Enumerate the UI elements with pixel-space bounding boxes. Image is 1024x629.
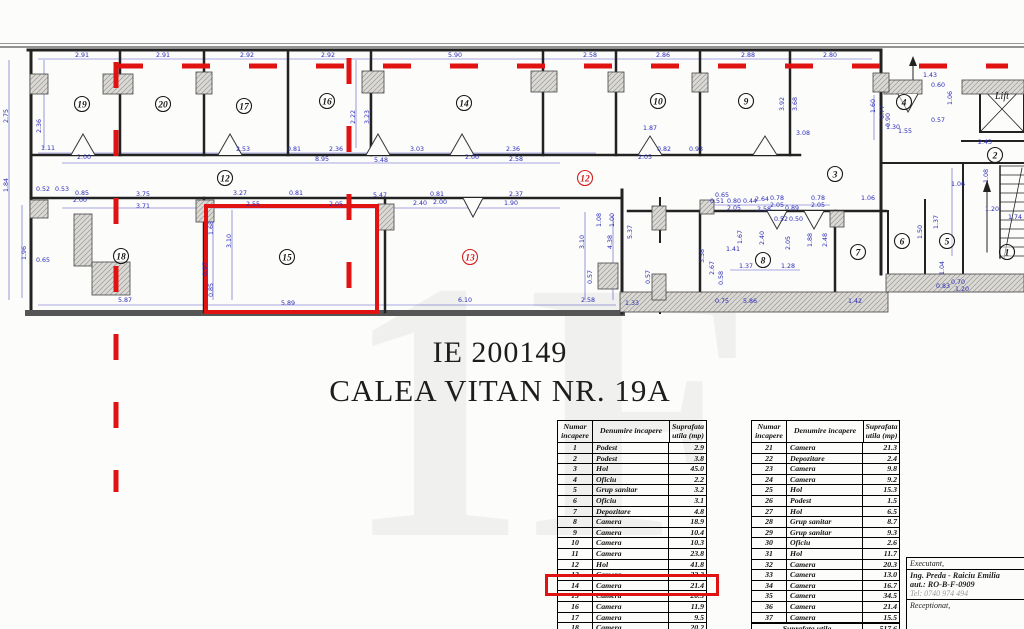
table-row: 29Grup sanitar9.3 — [752, 528, 899, 539]
dimension-label: 2.00 — [433, 199, 447, 206]
room-number: 2 — [992, 151, 998, 161]
dimension-label: 3.08 — [796, 130, 810, 137]
column-header: Denumire incapere — [593, 421, 670, 442]
room-name-cell: Camera — [593, 549, 669, 559]
room-name-cell: Hol — [593, 464, 669, 474]
room-number: 1 — [1005, 248, 1010, 258]
stairs — [1000, 166, 1024, 258]
table-row: 2Podest3.8 — [558, 454, 706, 465]
room-number-cell: 24 — [752, 475, 787, 485]
dimension-label: 2.75 — [3, 109, 10, 123]
room-area-cell: 11.9 — [669, 602, 706, 612]
dimension-label: 0.78 — [770, 195, 784, 202]
room-number-cell: 27 — [752, 507, 787, 517]
table-row: 22Depozitare2.4 — [752, 454, 899, 465]
dimension-label: 3.92 — [779, 97, 786, 111]
column-header: Denumire incapere — [787, 421, 864, 442]
dimension-label: 3.10 — [226, 234, 233, 248]
dimension-label: 0.57 — [587, 270, 594, 284]
dimension-label: 0.80 — [727, 198, 741, 205]
dimension-label: 1.37 — [739, 263, 753, 270]
room-number-cell: 3 — [558, 464, 593, 474]
room-name-cell: Camera — [787, 613, 863, 623]
table-row: 14Camera21.4 — [558, 581, 706, 592]
table-row: 15Camera20.5 — [558, 591, 706, 602]
table-row: 6Oficiu3.1 — [558, 496, 706, 507]
room-name-cell: Depozitare — [593, 507, 669, 517]
room-number-cell: 17 — [558, 613, 593, 623]
dimension-label: 2.00 — [73, 197, 87, 204]
room-name-cell: Camera — [593, 517, 669, 527]
room-area-cell: 41.8 — [669, 560, 706, 570]
dimension-label: 3.03 — [410, 146, 424, 153]
room-number-cell: 11 — [558, 549, 593, 559]
room-number-cell: 33 — [752, 570, 787, 580]
room-area-cell: 18.9 — [669, 517, 706, 527]
title-block: IE 200149 CALEA VITAN NR. 19A — [260, 336, 740, 409]
dimension-label: 2.05 — [329, 201, 343, 208]
table-header-row: Numar incapereDenumire incapereSuprafata… — [752, 421, 899, 443]
room-name-cell: Grup sanitar — [787, 517, 863, 527]
room-area-cell: 9.8 — [863, 464, 899, 474]
room-name-cell: Camera — [593, 538, 669, 548]
dimension-label: 5.87 — [118, 297, 132, 304]
dimension-label: 2.22 — [350, 110, 357, 124]
dimension-label: 2.53 — [236, 146, 250, 153]
table-row: 25Hol15.3 — [752, 485, 899, 496]
dimension-label: 3.27 — [233, 190, 247, 197]
room-area-cell: 15.3 — [863, 485, 899, 495]
dimension-label: 2.36 — [506, 146, 520, 153]
dimension-label: 0.50 — [789, 216, 803, 223]
dimension-label: 1.04 — [939, 261, 946, 275]
table-row: 7Depozitare4.8 — [558, 507, 706, 518]
room-number-cell: 13 — [558, 570, 593, 580]
dimension-label: 2.88 — [741, 52, 755, 59]
dimension-label: 1.00 — [609, 213, 616, 227]
room-name-cell: Camera — [593, 591, 669, 601]
room-name-cell: Oficiu — [593, 496, 669, 506]
room-area-cell: 3.1 — [669, 496, 706, 506]
dimension-label: 5.86 — [743, 298, 757, 305]
dimension-label: 2.64 — [755, 196, 769, 203]
dimension-label: 6.10 — [458, 297, 472, 304]
dimension-label: 1.06 — [861, 195, 875, 202]
room-number-cell: 8 — [558, 517, 593, 527]
room-number: 19 — [77, 100, 87, 110]
room-number-cell: 7 — [558, 507, 593, 517]
room-number: 3 — [832, 170, 838, 180]
room-area-cell: 4.8 — [669, 507, 706, 517]
room-area-cell: 21.4 — [863, 602, 899, 612]
dimension-label: 1.42 — [848, 298, 862, 305]
table-row: 16Camera11.9 — [558, 602, 706, 613]
dimension-label: 0.81 — [287, 146, 301, 153]
table-row: 28Grup sanitar8.7 — [752, 517, 899, 528]
room-area-cell: 11.7 — [863, 549, 899, 559]
room-number-cell: 23 — [752, 464, 787, 474]
dimension-label: 2.92 — [321, 52, 335, 59]
column-header: Suprafata utila (mp) — [864, 421, 899, 442]
dimension-label: 2.36 — [36, 119, 43, 133]
table-row: 3Hol45.0 — [558, 464, 706, 475]
room-number-cell: 5 — [558, 485, 593, 495]
table-row: 9Camera10.4 — [558, 528, 706, 539]
dimension-label: 1.84 — [3, 178, 10, 192]
room-number-cell: 30 — [752, 538, 787, 548]
dimension-label: 2.05 — [727, 205, 741, 212]
room-name-cell: Camera — [593, 623, 669, 629]
dimension-label: 0.85 — [208, 283, 215, 297]
total-value: 517.6 — [863, 624, 899, 629]
room-area-cell: 22.3 — [669, 570, 706, 580]
dimension-label: 0.97 — [202, 262, 209, 276]
room-number: 8 — [761, 256, 766, 266]
dimension-label: 0.81 — [430, 191, 444, 198]
room-name-cell: Camera — [593, 581, 669, 591]
dimension-label: 2.58 — [583, 52, 597, 59]
executant-authorization: aut.: RO-B-F-0909 — [910, 580, 1021, 589]
dimension-label: 0.65 — [36, 257, 50, 264]
room-area-cell: 9.2 — [863, 475, 899, 485]
room-area-cell: 20.3 — [863, 560, 899, 570]
dimension-label: 0.57 — [645, 270, 652, 284]
dimension-label: 2.40 — [413, 200, 427, 207]
dimension-label: 0.52 — [774, 216, 788, 223]
dimension-label: 1.06 — [951, 181, 965, 188]
table-row: 13Camera22.3 — [558, 570, 706, 581]
room-name-cell: Camera — [787, 464, 863, 474]
receptionat-label: Receptionat, — [907, 600, 1024, 611]
column-header: Numar incapere — [752, 421, 787, 442]
lift-label: Lift — [994, 91, 1009, 102]
room-area-cell: 1.5 — [863, 496, 899, 506]
table-row: 24Camera9.2 — [752, 475, 899, 486]
executant-name: Ing. Preda - Raiciu Emilia — [910, 571, 1021, 580]
drawing-sheet: 1F — [0, 0, 1024, 629]
room-number-cell: 36 — [752, 602, 787, 612]
dimension-label: 2.58 — [581, 297, 595, 304]
table-row: 33Camera13.0 — [752, 570, 899, 581]
dimension-label: 1.33 — [625, 300, 639, 307]
room-name-cell: Podest — [593, 443, 669, 453]
room-area-cell: 10.4 — [669, 528, 706, 538]
column-header: Numar incapere — [558, 421, 593, 442]
room-number-cell: 37 — [752, 613, 787, 623]
room-area-cell: 9.5 — [669, 613, 706, 623]
dimension-label: 2.40 — [759, 231, 766, 245]
room-name-cell: Oficiu — [593, 475, 669, 485]
room-name-cell: Camera — [593, 570, 669, 580]
room-area-cell: 45.0 — [669, 464, 706, 474]
dimension-label: 3.75 — [136, 191, 150, 198]
room-area-cell: 34.5 — [863, 591, 899, 601]
room-area-cell: 2.2 — [669, 475, 706, 485]
room-number-cell: 28 — [752, 517, 787, 527]
room-name-cell: Hol — [787, 485, 863, 495]
room-number: 9 — [744, 97, 749, 107]
dimension-label: 1.37 — [933, 215, 940, 229]
room-name-cell: Oficiu — [787, 538, 863, 548]
room-area-cell: 20.5 — [669, 591, 706, 601]
dimension-label: 2.37 — [509, 191, 523, 198]
dimension-label: 3.58 — [699, 249, 706, 263]
dimension-label: 0.60 — [931, 82, 945, 89]
dimension-label: 0.51 — [710, 198, 724, 205]
room-number-cell: 21 — [752, 443, 787, 453]
table-row: 4Oficiu2.2 — [558, 475, 706, 486]
dimension-label: 1.55 — [898, 128, 912, 135]
room-area-cell: 21.4 — [669, 581, 706, 591]
dimension-label: 1.90 — [504, 200, 518, 207]
room-table-left: Numar incapereDenumire incapereSuprafata… — [557, 420, 707, 629]
table-row: 1Podest2.9 — [558, 443, 706, 454]
dimension-label: 0.58 — [718, 271, 725, 285]
room-area-cell: 3.8 — [669, 454, 706, 464]
dimension-label: 2.05 — [638, 154, 652, 161]
dimension-label: 0.93 — [689, 146, 703, 153]
table-row: 18Camera20.2 — [558, 623, 706, 629]
dimension-label: 0.82 — [657, 146, 671, 153]
table-row: 32Camera20.3 — [752, 560, 899, 571]
dimension-label: 5.89 — [281, 300, 295, 307]
dimension-label: 2.55 — [246, 201, 260, 208]
dimension-label: 4.38 — [607, 235, 614, 249]
table-row: 27Hol6.5 — [752, 507, 899, 518]
table-row: 37Camera15.5 — [752, 613, 899, 624]
room-name-cell: Grup sanitar — [593, 485, 669, 495]
room-number-cell: 34 — [752, 581, 787, 591]
room-area-cell: 2.4 — [863, 454, 899, 464]
dimension-label: 2.80 — [823, 52, 837, 59]
room-name-cell: Camera — [787, 591, 863, 601]
room-number: 17 — [239, 102, 250, 112]
dimension-label: 1.11 — [41, 145, 55, 152]
room-area-cell: 20.2 — [669, 623, 706, 629]
dimension-label: 1.88 — [807, 233, 814, 247]
dimension-label: 0.52 — [36, 186, 50, 193]
table-total-row: Suprafata utila517.6 — [752, 623, 899, 629]
dimension-label: 2.58 — [757, 206, 771, 213]
room-area-cell: 6.5 — [863, 507, 899, 517]
room-number-cell: 22 — [752, 454, 787, 464]
table-row: 36Camera21.4 — [752, 602, 899, 613]
room-number: 18 — [116, 252, 126, 262]
table-row: 30Oficiu2.6 — [752, 538, 899, 549]
dimension-label: 2.05 — [785, 236, 792, 250]
dimension-label: 2.00 — [465, 154, 479, 161]
room-name-cell: Camera — [787, 570, 863, 580]
dimension-label: 0.70 — [951, 279, 965, 286]
dimension-label: 2.92 — [240, 52, 254, 59]
room-name-cell: Camera — [787, 475, 863, 485]
table-row: 35Camera34.5 — [752, 591, 899, 602]
dimension-label: 0.53 — [55, 186, 69, 193]
dimension-label: 1.20 — [985, 206, 999, 213]
dimension-label: 2.43 — [978, 139, 992, 146]
dimension-label: 3.68 — [792, 97, 799, 111]
room-name-cell: Camera — [593, 528, 669, 538]
room-number-cell: 25 — [752, 485, 787, 495]
dimension-label: 0.75 — [715, 298, 729, 305]
dimension-label: 1.87 — [643, 125, 657, 132]
dimension-label: 1.08 — [596, 213, 603, 227]
dimension-label: 2.48 — [822, 233, 829, 247]
room-number: 12 — [580, 174, 590, 184]
dimension-label: 1.60 — [870, 99, 877, 113]
room-area-cell: 21.3 — [863, 443, 899, 453]
room-table-right: Numar incapereDenumire incapereSuprafata… — [751, 420, 900, 629]
dimension-label: 3.23 — [364, 110, 371, 124]
room-number-cell: 9 — [558, 528, 593, 538]
dimension-label: 3.10 — [579, 235, 586, 249]
dimension-label: 0.78 — [811, 195, 825, 202]
dimension-label: 2.67 — [709, 261, 716, 275]
table-row: 8Camera18.9 — [558, 517, 706, 528]
room-number: 10 — [653, 97, 663, 107]
room-name-cell: Hol — [593, 560, 669, 570]
room-area-cell: 23.8 — [669, 549, 706, 559]
room-number-cell: 26 — [752, 496, 787, 506]
dimension-label: 5.90 — [448, 52, 462, 59]
dimension-label: 2.91 — [75, 52, 89, 59]
dimension-label: 1.74 — [1008, 214, 1022, 221]
dimension-label: 2.05 — [811, 202, 825, 209]
dimension-label: 1.96 — [21, 246, 28, 260]
dimension-label: 1.68 — [208, 221, 215, 235]
dimension-label: 3.71 — [136, 203, 150, 210]
dimension-label: 1.50 — [917, 225, 924, 239]
table-row: 31Hol11.7 — [752, 549, 899, 560]
dimension-label: 2.91 — [156, 52, 170, 59]
dimension-label: 1.28 — [781, 263, 795, 270]
room-name-cell: Camera — [787, 443, 863, 453]
room-name-cell: Camera — [593, 602, 669, 612]
dimension-label: 0.85 — [75, 190, 89, 197]
total-label: Suprafata utila — [752, 624, 863, 629]
room-area-cell: 3.2 — [669, 485, 706, 495]
room-number-cell: 4 — [558, 475, 593, 485]
room-area-cell: 2.9 — [669, 443, 706, 453]
dimension-label: 0.83 — [936, 283, 950, 290]
document-number: IE 200149 — [260, 336, 740, 370]
room-number-cell: 18 — [558, 623, 593, 629]
room-number-cell: 31 — [752, 549, 787, 559]
table-row: 34Camera16.7 — [752, 581, 899, 592]
dimension-label: 0.44 — [743, 198, 757, 205]
dimension-label: 5.37 — [627, 225, 634, 239]
room-number: 12 — [220, 174, 230, 184]
room-number-cell: 29 — [752, 528, 787, 538]
executant-box: Executant, Ing. Preda - Raiciu Emilia au… — [906, 557, 1024, 629]
dimension-label: 1.08 — [983, 169, 990, 183]
dimension-label: 2.58 — [509, 156, 523, 163]
room-number-cell: 35 — [752, 591, 787, 601]
executant-label: Executant, — [907, 558, 1024, 570]
room-name-cell: Hol — [787, 549, 863, 559]
room-name-cell: Podest — [593, 454, 669, 464]
table-header-row: Numar incapereDenumire incapereSuprafata… — [558, 421, 706, 443]
room-name-cell: Camera — [787, 602, 863, 612]
room-number-cell: 1 — [558, 443, 593, 453]
room-number: 15 — [282, 253, 292, 263]
room-area-cell: 15.5 — [863, 613, 899, 623]
table-row: 5Grup sanitar3.2 — [558, 485, 706, 496]
room-number: 20 — [157, 100, 168, 110]
column-header: Suprafata utila (mp) — [670, 421, 706, 442]
room-name-cell: Camera — [787, 560, 863, 570]
dimension-label: 1.41 — [726, 246, 740, 253]
room-number-cell: 16 — [558, 602, 593, 612]
dimension-label: 1.06 — [947, 91, 954, 105]
room-name-cell: Camera — [593, 613, 669, 623]
table-row: 21Camera21.3 — [752, 443, 899, 454]
room-area-cell: 16.7 — [863, 581, 899, 591]
room-number: 4 — [901, 98, 907, 108]
dimension-label: 5.47 — [373, 192, 387, 199]
room-number-cell: 14 — [558, 581, 593, 591]
table-row: 26Podest1.5 — [752, 496, 899, 507]
room-number: 6 — [900, 237, 905, 247]
room-number: 16 — [322, 97, 332, 107]
executant-phone: Tel: 0740 974 494 — [910, 589, 1021, 598]
room-number: 13 — [465, 253, 475, 263]
table-row: 23Camera9.8 — [752, 464, 899, 475]
table-row: 11Camera23.8 — [558, 549, 706, 560]
dimension-label: 1.20 — [955, 286, 969, 293]
table-row: 17Camera9.5 — [558, 613, 706, 624]
room-number-cell: 32 — [752, 560, 787, 570]
room-number-cell: 2 — [558, 454, 593, 464]
dimension-label: 2.86 — [656, 52, 670, 59]
address-title: CALEA VITAN NR. 19A — [260, 373, 740, 409]
dimension-label: 1.67 — [737, 230, 744, 244]
room-number: 5 — [945, 237, 950, 247]
room-name-cell: Camera — [787, 581, 863, 591]
dimension-label: 0.57 — [931, 117, 945, 124]
room-number-cell: 6 — [558, 496, 593, 506]
room-number-cell: 15 — [558, 591, 593, 601]
dimension-label: 5.48 — [374, 157, 388, 164]
dimension-label: 0.89 — [785, 205, 799, 212]
room-name-cell: Grup sanitar — [787, 528, 863, 538]
dimension-label: 2.00 — [77, 154, 91, 161]
room-name-cell: Podest — [787, 496, 863, 506]
room-area-cell: 8.7 — [863, 517, 899, 527]
room-number-cell: 10 — [558, 538, 593, 548]
room-area-cell: 2.6 — [863, 538, 899, 548]
room-number-cell: 12 — [558, 560, 593, 570]
table-row: 10Camera10.3 — [558, 538, 706, 549]
dimension-label: 2.36 — [329, 146, 343, 153]
dimension-label: 0.90 — [885, 113, 892, 127]
dimension-label: 8.95 — [315, 156, 329, 163]
dimension-label: 1.43 — [923, 72, 937, 79]
room-area-cell: 13.0 — [863, 570, 899, 580]
room-number: 14 — [459, 99, 469, 109]
dimension-label: 2.05 — [770, 202, 784, 209]
room-name-cell: Hol — [787, 507, 863, 517]
room-area-cell: 10.3 — [669, 538, 706, 548]
room-area-cell: 9.3 — [863, 528, 899, 538]
dimension-label: 0.81 — [289, 190, 303, 197]
dimension-label: 0.77 — [879, 105, 886, 119]
room-name-cell: Depozitare — [787, 454, 863, 464]
table-row: 12Hol41.8 — [558, 560, 706, 571]
